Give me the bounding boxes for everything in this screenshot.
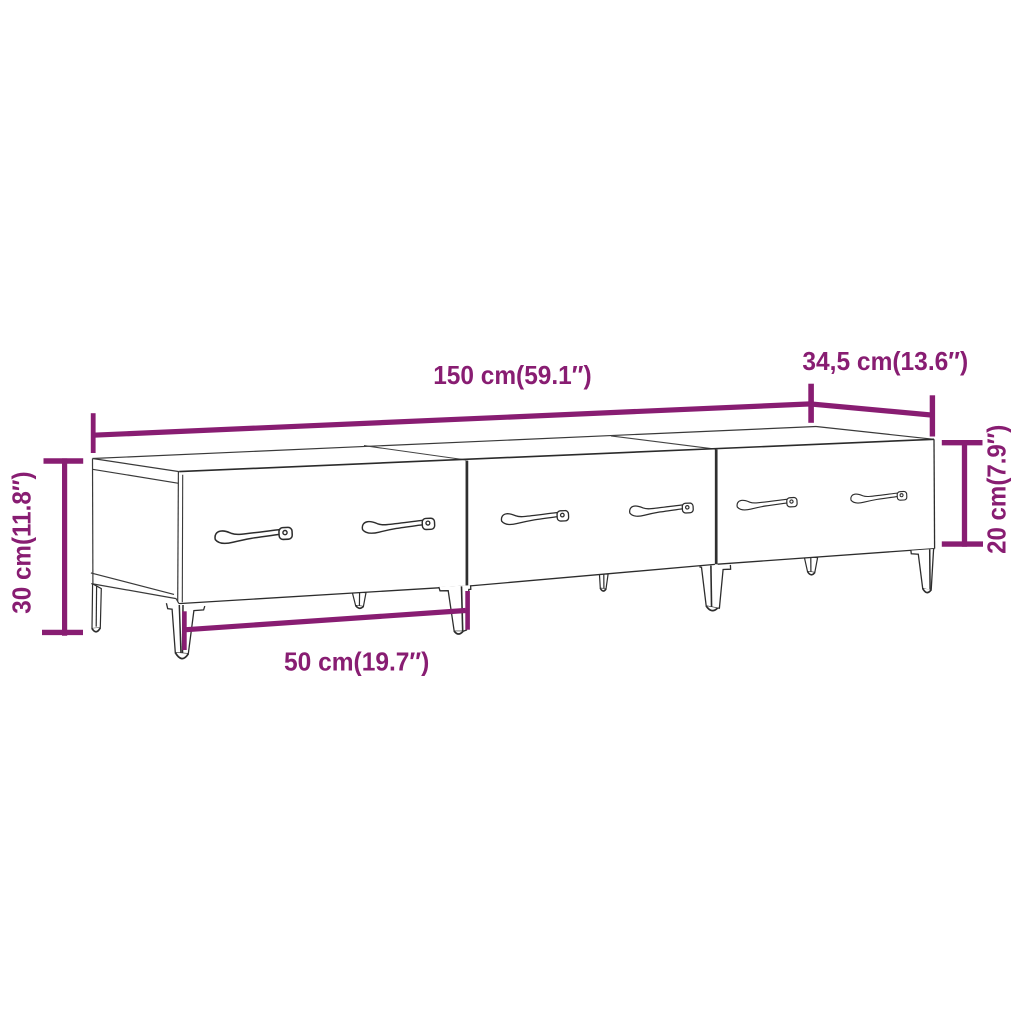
svg-text:34,5 cm(13.6″): 34,5 cm(13.6″)	[802, 346, 968, 376]
svg-text:20 cm(7.9″): 20 cm(7.9″)	[982, 425, 1012, 554]
svg-text:30 cm(11.8″): 30 cm(11.8″)	[7, 471, 37, 613]
svg-text:150 cm(59.1″): 150 cm(59.1″)	[433, 360, 591, 390]
svg-text:50 cm(19.7″): 50 cm(19.7″)	[284, 647, 429, 677]
